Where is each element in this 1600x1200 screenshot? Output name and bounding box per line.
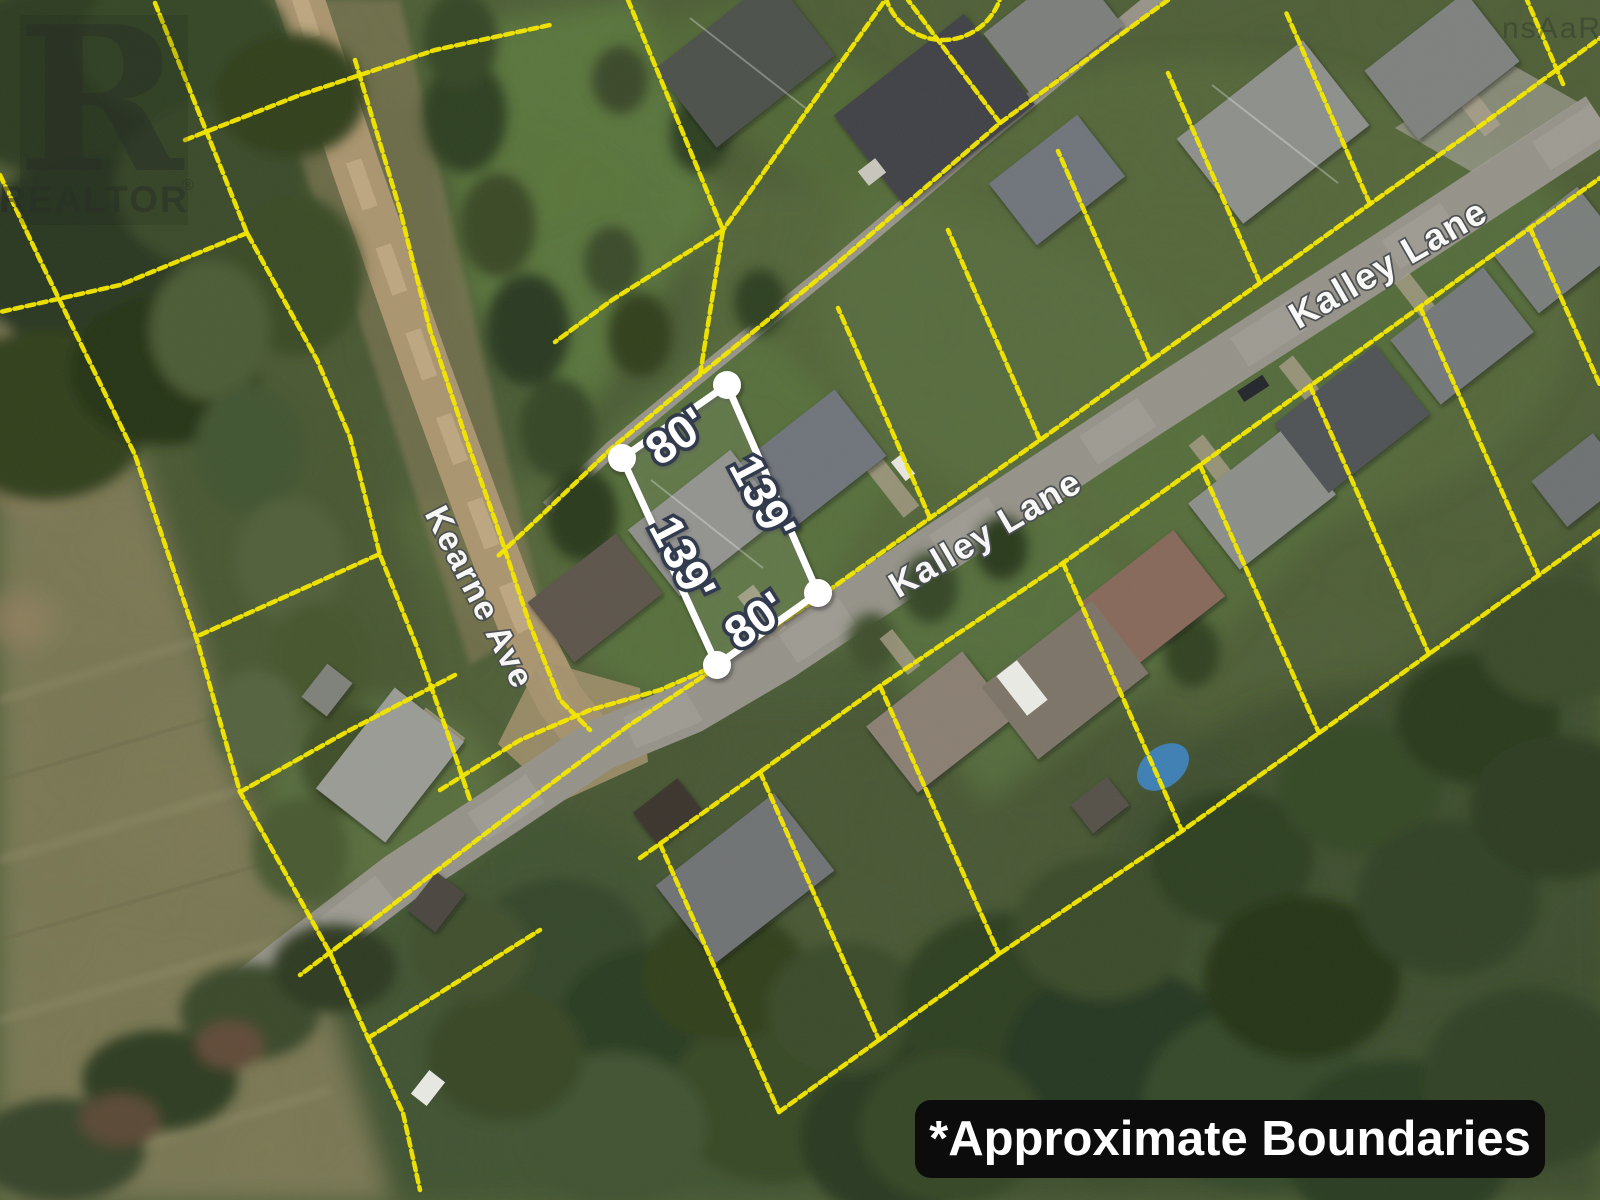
satellite-map: Kearne Ave Kalley Lane Kalley Lane 80' 1… xyxy=(0,0,1600,1200)
approximate-boundaries-banner: *Approximate Boundaries xyxy=(915,1100,1545,1178)
listing-photo: Kearne Ave Kalley Lane Kalley Lane 80' 1… xyxy=(0,0,1600,1200)
realtor-watermark: R REALTOR ® xyxy=(0,0,194,225)
corner-watermark: nsAaR xyxy=(1502,12,1600,45)
realtor-logo-text: REALTOR xyxy=(0,179,189,220)
lot-corner-marker xyxy=(703,651,731,679)
lot-corner-marker xyxy=(608,444,636,472)
lot-corner-marker xyxy=(713,371,741,399)
registered-trademark-icon: ® xyxy=(182,177,194,194)
lot-corner-marker xyxy=(804,579,832,607)
banner-text: *Approximate Boundaries xyxy=(929,1111,1531,1167)
